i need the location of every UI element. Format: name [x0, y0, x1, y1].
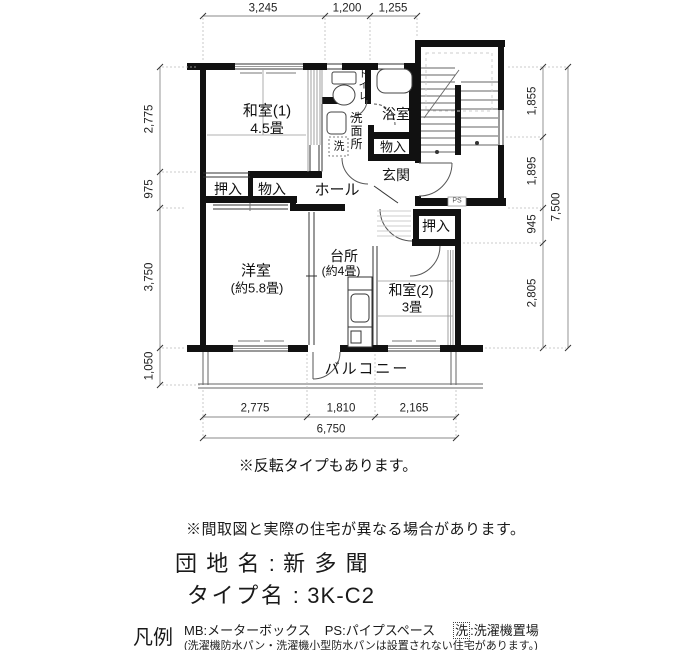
room-label-toilet: トイレ	[356, 69, 366, 102]
closet-label-monoiire-upper: 物入	[380, 141, 406, 154]
legend-sen-text: :洗濯機置場	[470, 623, 539, 638]
room-label-daidokoro: 台所	[330, 249, 358, 263]
dim-top-3: 1,255	[379, 3, 408, 15]
legend-note: (洗濯機防水パン・洗濯機小型防水パンは設置されない住宅があります。)	[184, 637, 538, 650]
type-name-value: 3K-C2	[307, 583, 375, 608]
room-label-hall: ホール	[314, 183, 359, 198]
note-disclaimer: ※間取図と実際の住宅が異なる場合があります。	[186, 518, 526, 539]
legend-ps: PS:パイプスペース	[325, 623, 435, 638]
room-label-senmenjo: 洗面所	[350, 112, 362, 151]
dim-bottom-total: 6,750	[317, 424, 346, 436]
legend-mb: MB:メーターボックス	[184, 623, 311, 638]
dim-left-3: 3,750	[144, 263, 156, 292]
room-label-genkan: 玄関	[382, 168, 410, 182]
room-size-washitsu2: 3畳	[402, 301, 422, 314]
dim-bottom-1: 2,775	[241, 403, 270, 415]
dim-right-4: 2,805	[527, 279, 539, 308]
room-size-daidokoro: (約4畳)	[322, 265, 361, 277]
danchi-colon: :	[269, 551, 276, 576]
balcony-label: バルコニー	[325, 362, 410, 377]
closet-label-monoiire-left: 物入	[258, 182, 286, 196]
dim-bottom-2: 1,810	[327, 403, 356, 415]
danchi-name-label: 団地名	[175, 551, 269, 576]
note-reverse-type: ※反転タイプもあります。	[239, 459, 418, 474]
dim-right-1: 1,855	[527, 87, 539, 116]
closet-label-oshiire-right: 押入	[422, 219, 450, 233]
room-label-yoshitsu: 洋室	[241, 264, 271, 279]
ps-label: PS	[452, 198, 461, 205]
laundry-symbol: 洗	[334, 142, 345, 153]
room-label-yokushitsu: 浴室	[382, 107, 410, 121]
bathtub-icon	[377, 69, 412, 93]
type-colon: :	[293, 583, 300, 608]
danchi-name-line: 団地名: 新多聞	[175, 546, 377, 578]
floorplan-page: 和室(1) 4.5畳 押入 物入 ホール トイレ 洗面所 洗 浴室 物入 玄関 …	[0, 0, 700, 650]
danchi-name-value: 新多聞	[283, 551, 377, 576]
room-label-washitsu1: 和室(1)	[243, 104, 291, 119]
kitchen-counter	[348, 277, 372, 347]
toilet-icon	[332, 72, 356, 105]
dim-right-3: 945	[527, 214, 539, 233]
type-name-label: タイプ名	[187, 583, 286, 608]
dim-left-1: 2,775	[144, 105, 156, 134]
room-size-washitsu1: 4.5畳	[250, 121, 283, 135]
dim-right-total: 7,500	[551, 193, 563, 222]
room-size-yoshitsu: (約5.8畳)	[231, 282, 284, 295]
dim-top-1: 3,245	[249, 3, 278, 15]
dim-left-4: 1,050	[144, 352, 156, 381]
legend-title: 凡例	[133, 621, 173, 650]
dim-bottom-3: 2,165	[400, 403, 429, 415]
washbasin-icon	[327, 112, 346, 134]
closet-label-oshiire-left: 押入	[214, 182, 242, 196]
dim-right-2: 1,895	[527, 157, 539, 186]
type-name-line: タイプ名 : 3K-C2	[187, 578, 375, 610]
genkan-step-hatch	[377, 211, 411, 236]
room-label-washitsu2: 和室(2)	[388, 283, 433, 297]
dim-left-2: 975	[144, 179, 156, 198]
dim-top-2: 1,200	[333, 3, 362, 15]
floor-plan-drawing	[0, 0, 700, 452]
